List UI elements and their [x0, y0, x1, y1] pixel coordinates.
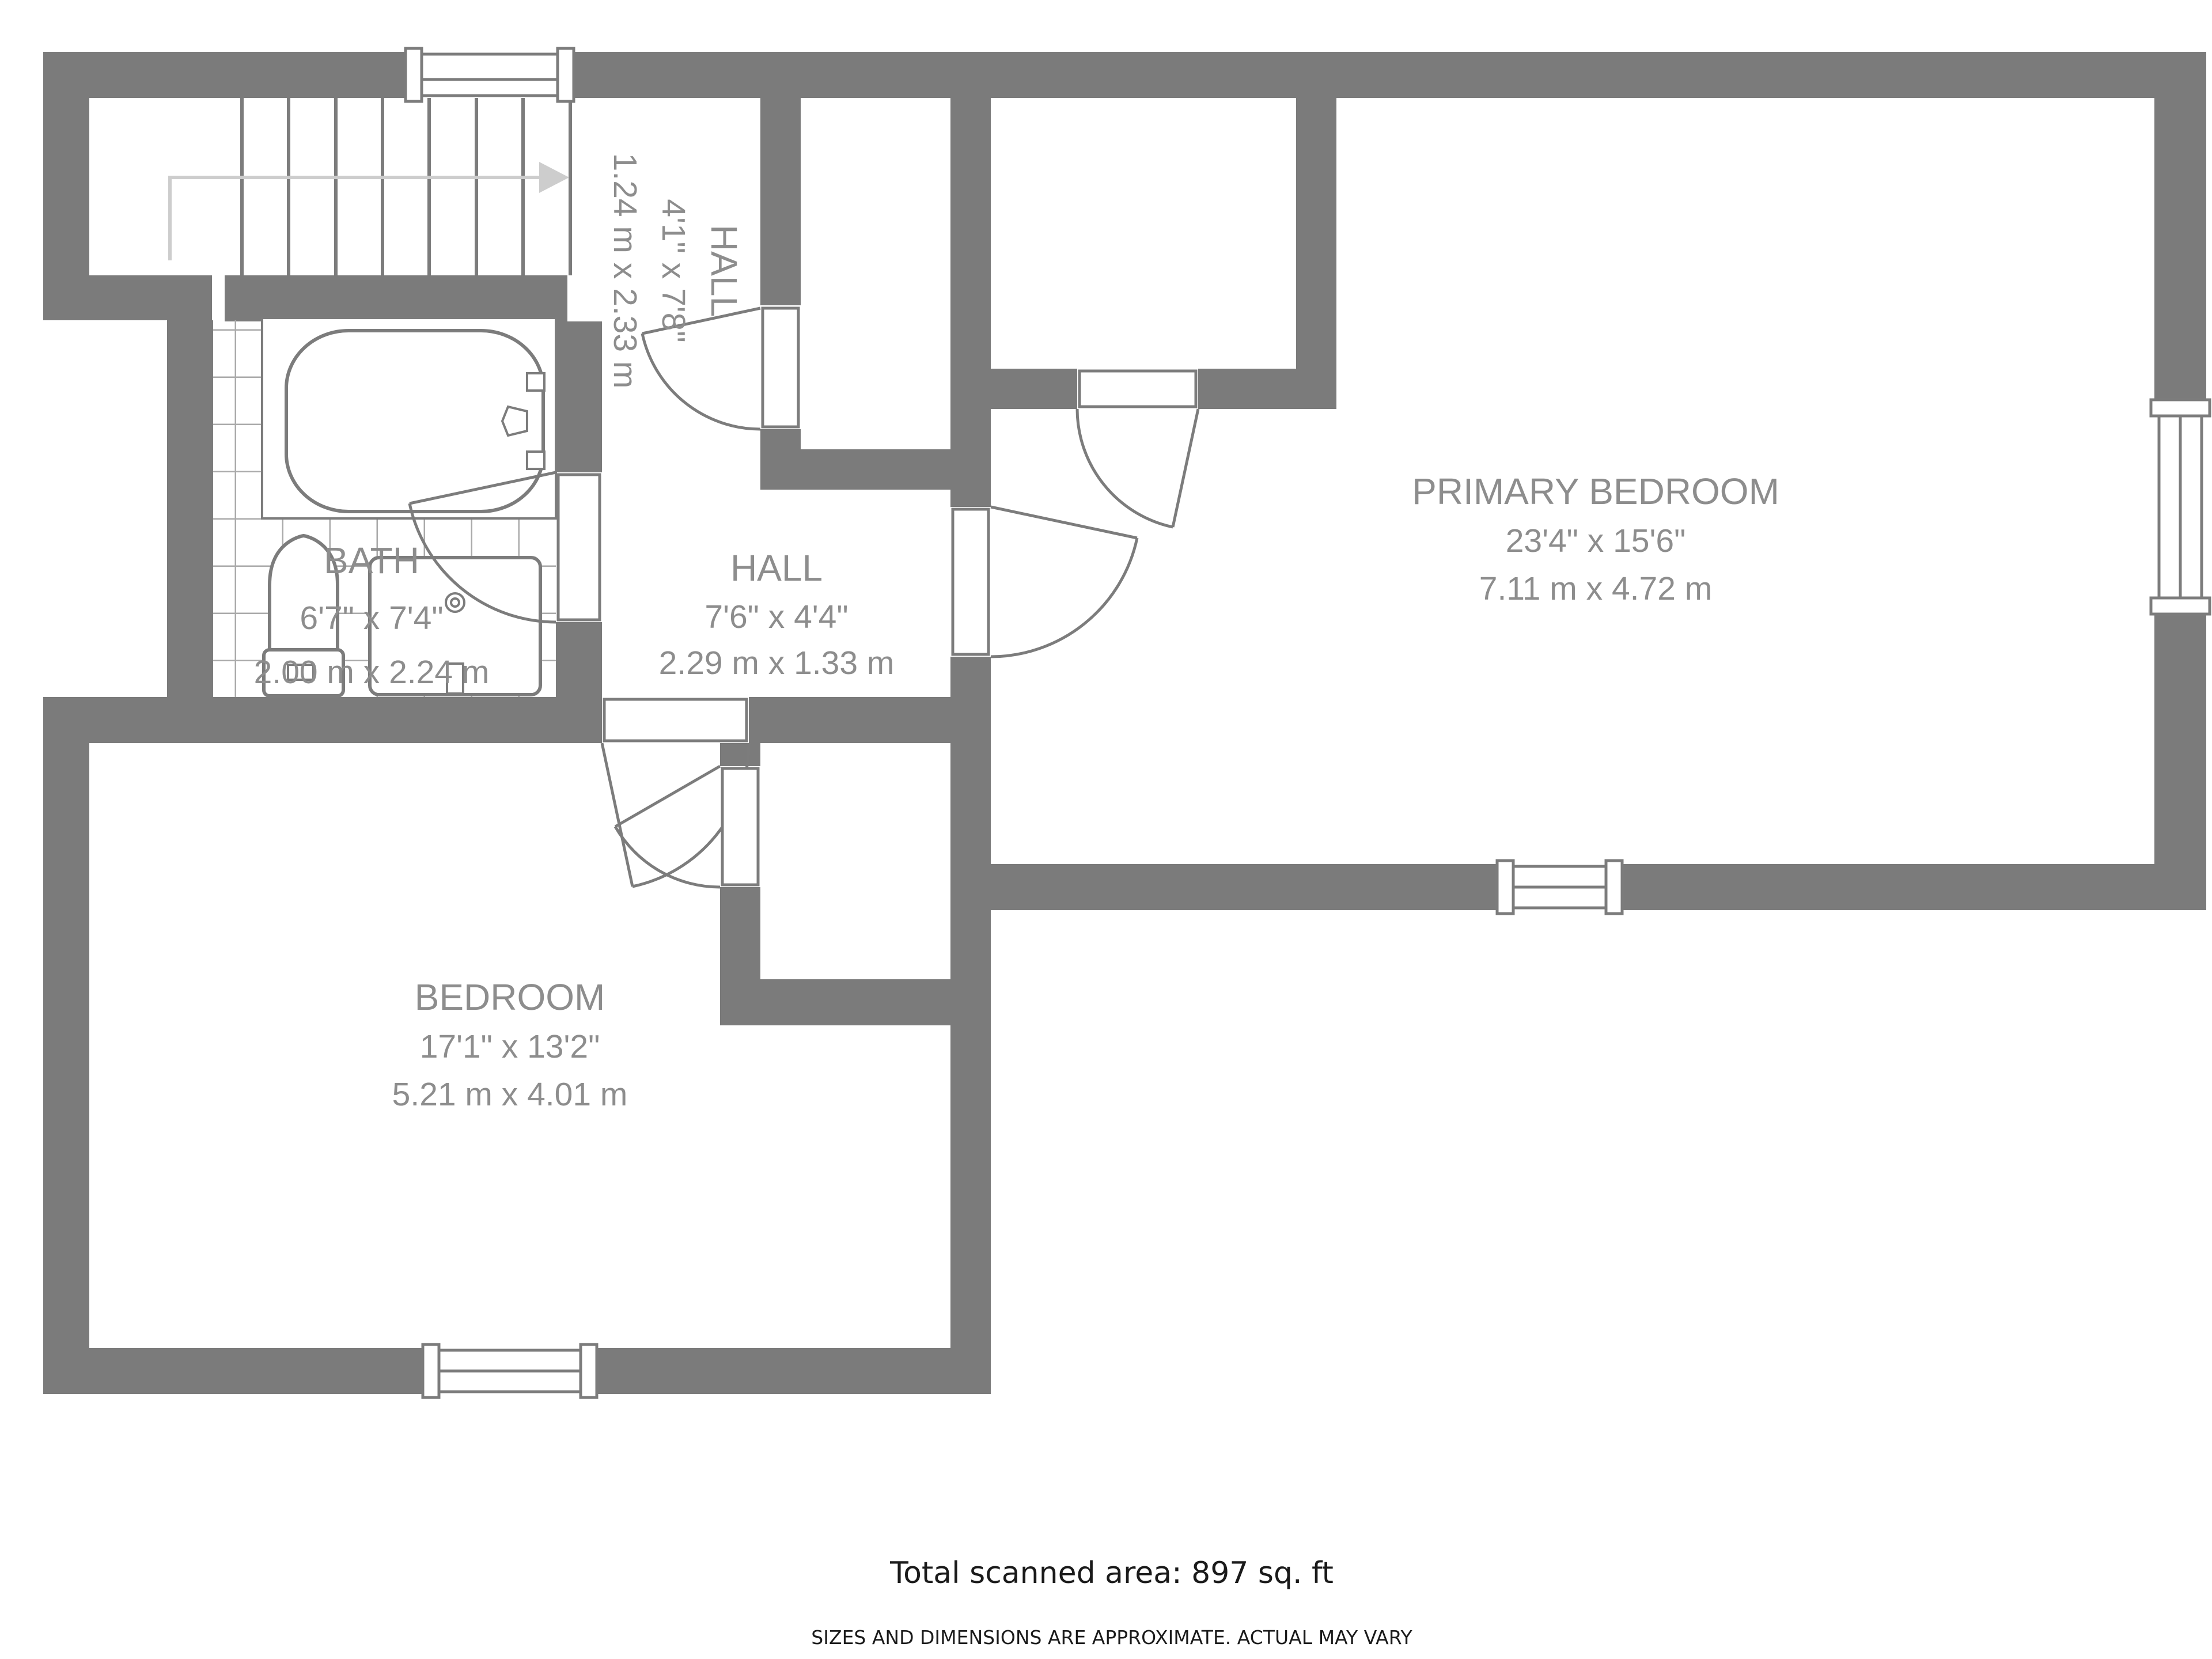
door-primary-entry — [953, 507, 1137, 657]
room-dims-m: 5.21 m x 4.01 m — [392, 1076, 628, 1113]
window-primary-right — [2151, 400, 2210, 614]
door-primary-closet — [1077, 371, 1198, 527]
stairs — [170, 98, 570, 275]
wall-bedroom-left — [43, 697, 89, 1394]
wall-top — [43, 52, 2206, 98]
room-name: BEDROOM — [415, 976, 605, 1018]
window-post — [1606, 861, 1622, 914]
wall-tall-closet-bottom — [760, 449, 950, 490]
wall-stairs-bottom — [225, 275, 567, 321]
room-name: BATH — [324, 540, 419, 581]
window-post — [406, 48, 422, 101]
wall-closet2-bottom-right — [1198, 369, 1296, 409]
label-primary-bedroom: PRIMARY BEDROOM 23'4" x 15'6" 7.11 m x 4… — [1412, 471, 1779, 607]
window-primary-bottom — [1497, 861, 1622, 914]
wall-bath-right-upper — [556, 321, 602, 472]
room-name: HALL — [703, 225, 745, 317]
label-hall: HALL 7'6" x 4'4" 2.29 m x 1.33 m — [659, 547, 895, 681]
room-dims-m: 2.29 m x 1.33 m — [659, 645, 895, 681]
room-dims-ft: 23'4" x 15'6" — [1506, 522, 1686, 559]
floor-plan: HALL 4'1" x 7'8" 1.24 m x 2.33 m BATH 6'… — [0, 0, 2212, 1659]
total-area-text: Total scanned area: 897 sq. ft — [889, 1556, 1334, 1590]
wall-bath-right-lower — [556, 622, 602, 743]
window-post — [2151, 598, 2210, 614]
wall-closet2-right — [1296, 98, 1336, 409]
window-post — [423, 1344, 439, 1397]
label-bedroom: BEDROOM 17'1" x 13'2" 5.21 m x 4.01 m — [392, 976, 628, 1113]
bathroom-fixtures — [213, 318, 556, 697]
label-landing-hall: HALL 4'1" x 7'8" 1.24 m x 2.33 m — [607, 153, 745, 389]
room-dims-m: 2.00 m x 2.24 m — [254, 654, 490, 691]
room-dims-m: 1.24 m x 2.33 m — [607, 153, 643, 389]
room-dims-ft: 6'7" x 7'4" — [300, 600, 443, 637]
wall-hall-bottom — [749, 697, 950, 743]
bathtub-faucet-bracket-top — [527, 373, 544, 391]
room-name: PRIMARY BEDROOM — [1412, 471, 1779, 512]
door-bedroom-closet — [615, 766, 758, 887]
walls — [43, 52, 2206, 1394]
room-name: HALL — [730, 547, 823, 589]
wall-left-stub — [43, 275, 212, 320]
wall-bedroom-closet-bottom — [720, 979, 991, 1025]
window-post — [558, 48, 574, 101]
room-dims-ft: 17'1" x 13'2" — [420, 1028, 600, 1065]
wall-bedroom-closet-left-upper — [720, 743, 760, 766]
window-post — [581, 1344, 597, 1397]
wall-bath-left — [167, 320, 213, 743]
stairs-direction-arrow — [170, 162, 569, 260]
bathtub-faucet-bracket-bottom — [527, 452, 544, 469]
room-dims-ft: 4'1" x 7'8" — [655, 199, 692, 342]
wall-bath-bedroom-top — [43, 697, 602, 743]
wall-mid-vertical-upper — [950, 98, 991, 507]
stair-treads — [242, 98, 570, 275]
window-top-stairwell — [406, 48, 574, 101]
window-bedroom-bottom — [423, 1344, 597, 1397]
room-dims-m: 7.11 m x 4.72 m — [1479, 570, 1712, 607]
wall-landing-closet-upper — [760, 98, 801, 305]
sink-drain-inner — [451, 599, 459, 607]
window-post — [1497, 861, 1513, 914]
wall-closet2-bottom-left — [991, 369, 1077, 409]
room-dims-ft: 7'6" x 4'4" — [704, 599, 848, 635]
disclaimer-text: SIZES AND DIMENSIONS ARE APPROXIMATE. AC… — [811, 1626, 1412, 1649]
bathtub-faucet-spout — [502, 407, 527, 435]
window-post — [2151, 400, 2210, 416]
